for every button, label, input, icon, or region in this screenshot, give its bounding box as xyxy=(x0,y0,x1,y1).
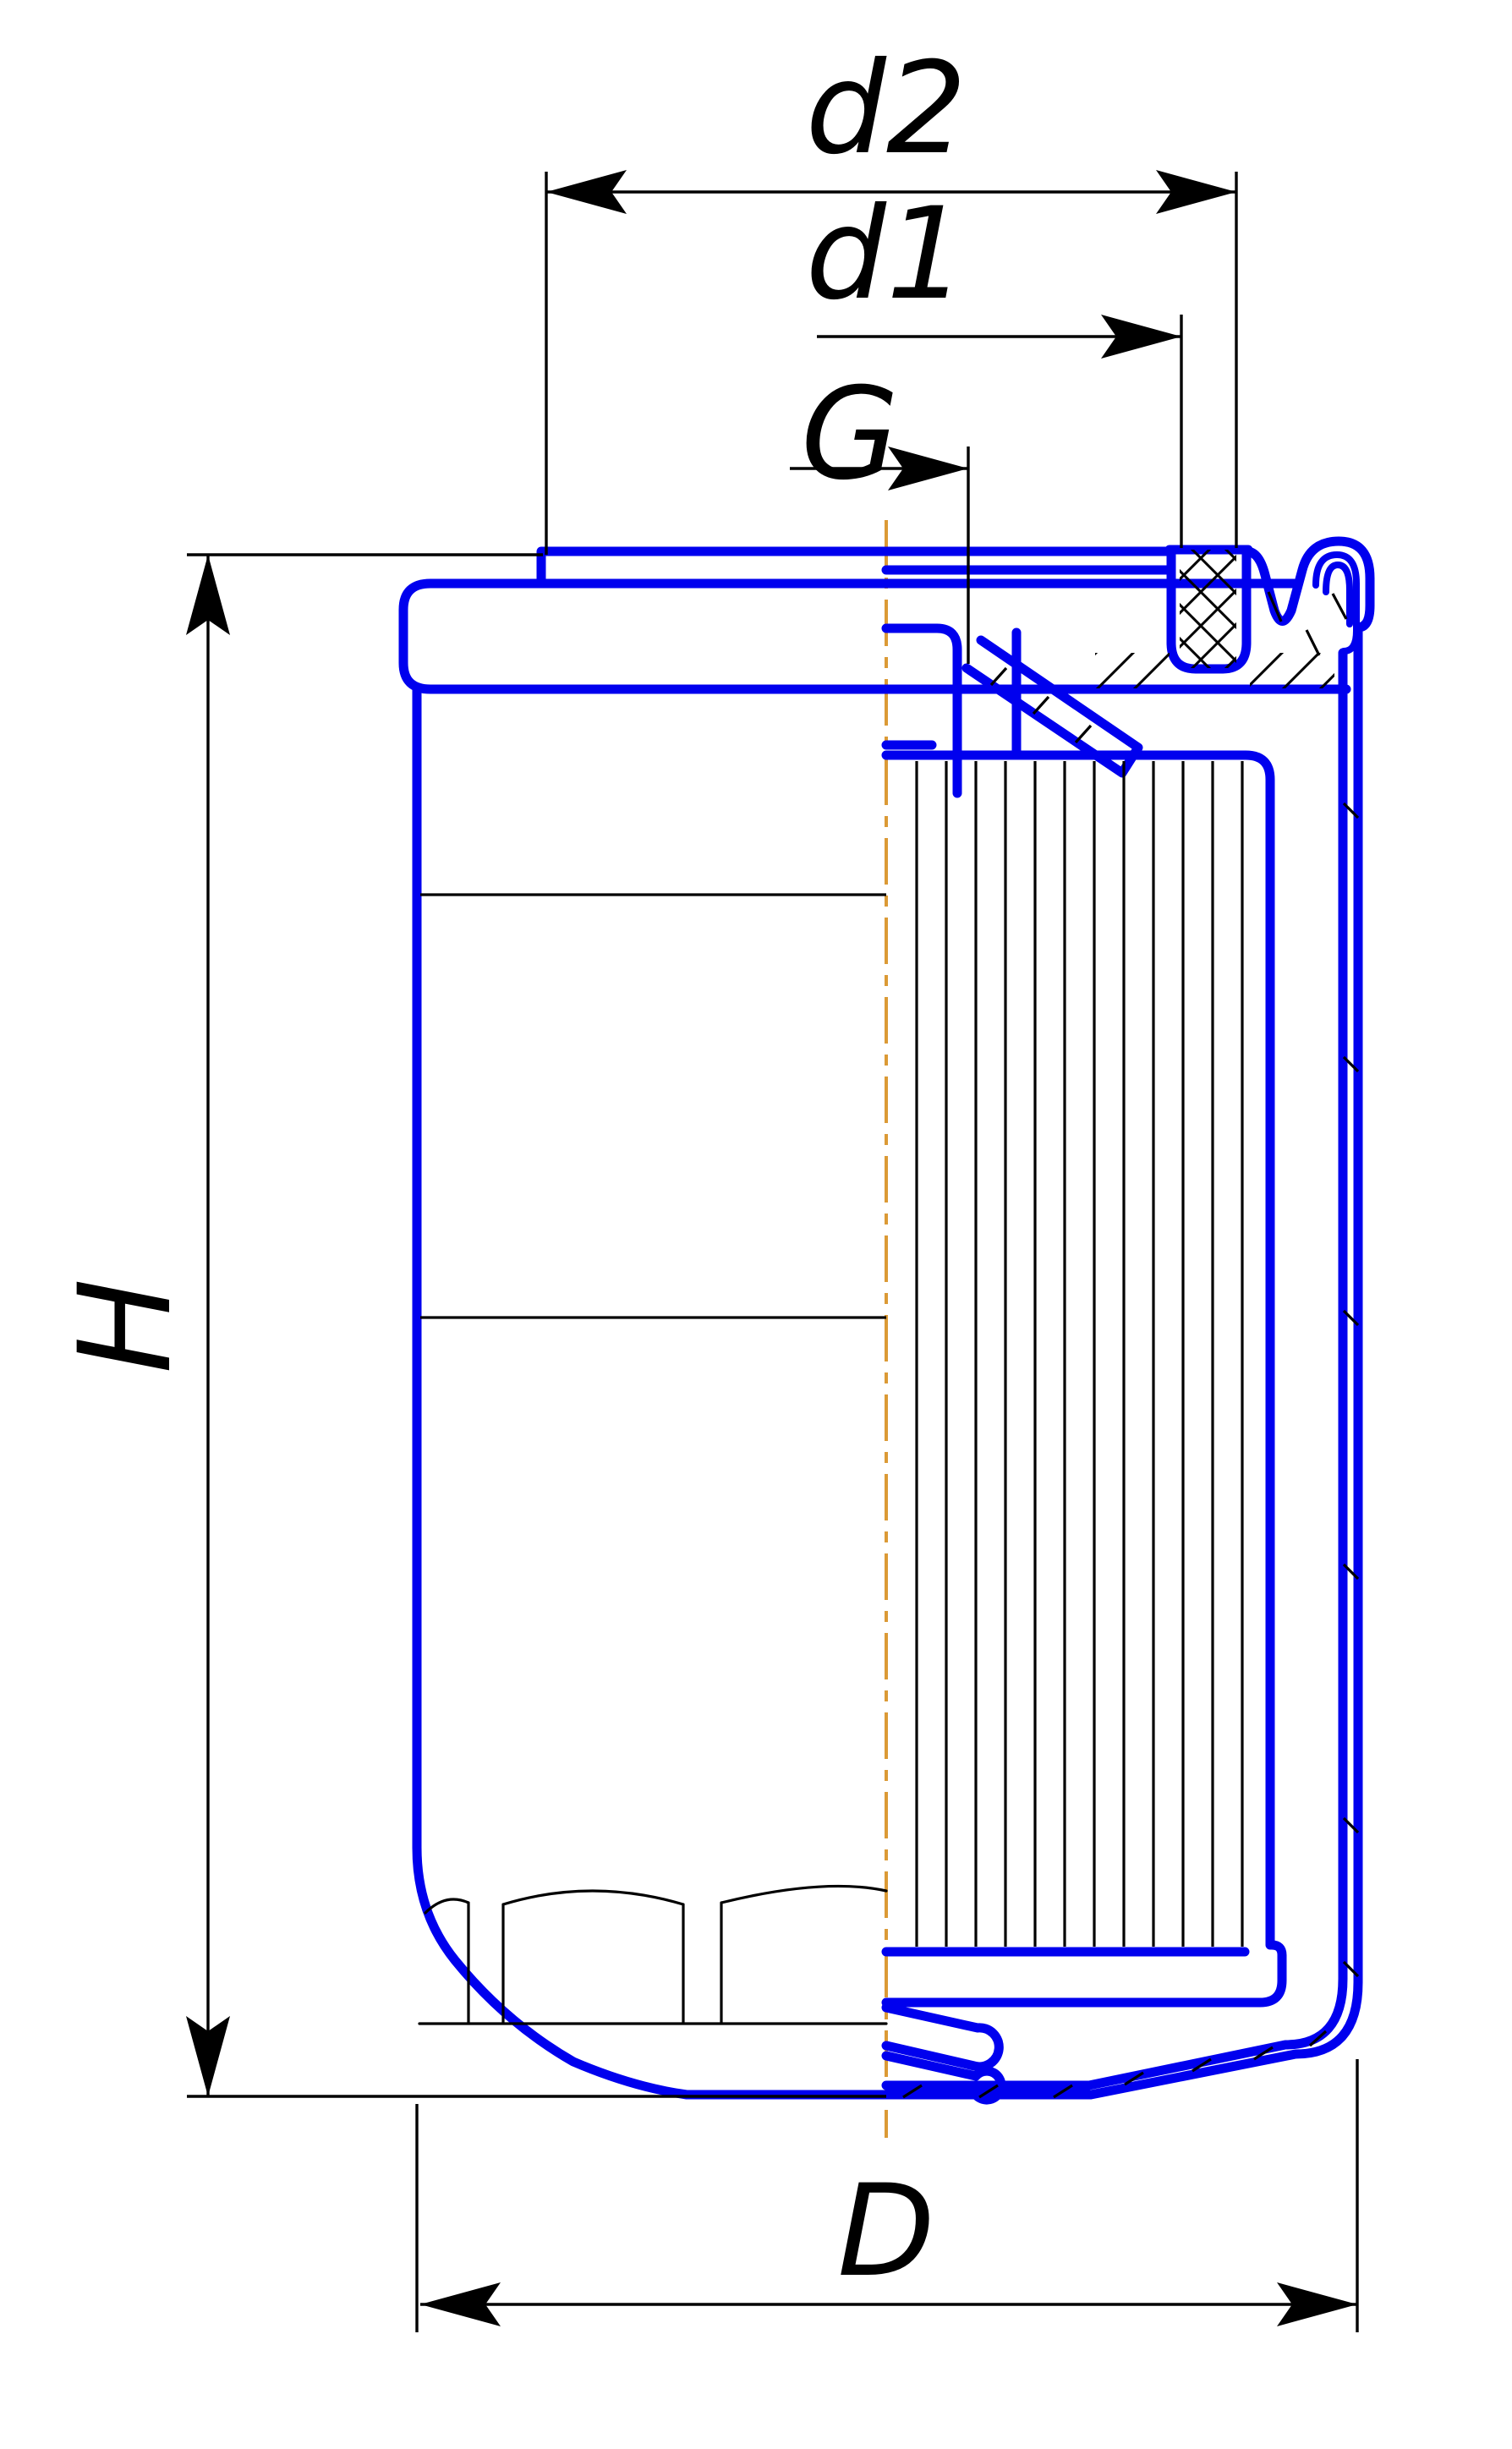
detail-lines xyxy=(419,761,1242,2024)
seam-crimp-inner xyxy=(1316,555,1356,651)
dimension-label-h: H xyxy=(52,1279,200,1374)
element-pleats xyxy=(917,761,1242,1947)
top-plate xyxy=(541,551,1170,583)
gasket-seal-crosshatch xyxy=(1180,550,1236,668)
section-hatching xyxy=(903,550,1358,2097)
dimension-label-d: D xyxy=(837,2158,935,2305)
dimension-d: D xyxy=(417,2059,1357,2332)
element-bottom-endplate xyxy=(886,1945,1282,2002)
dimension-label-d2: d2 xyxy=(806,36,967,183)
dimension-label-d1: d1 xyxy=(806,181,967,328)
body-groove-lines xyxy=(420,895,886,1318)
technical-drawing: d2 d1 G H D xyxy=(0,0,1512,2449)
technical-drawing-page: d2 d1 G H D xyxy=(0,0,1512,2449)
dimension-h: H xyxy=(52,555,886,2096)
plate-hatch-left xyxy=(1095,653,1170,688)
dimension-g: G xyxy=(790,361,968,664)
dimension-label-g: G xyxy=(801,361,899,508)
plate-hatch-right xyxy=(1250,653,1334,688)
